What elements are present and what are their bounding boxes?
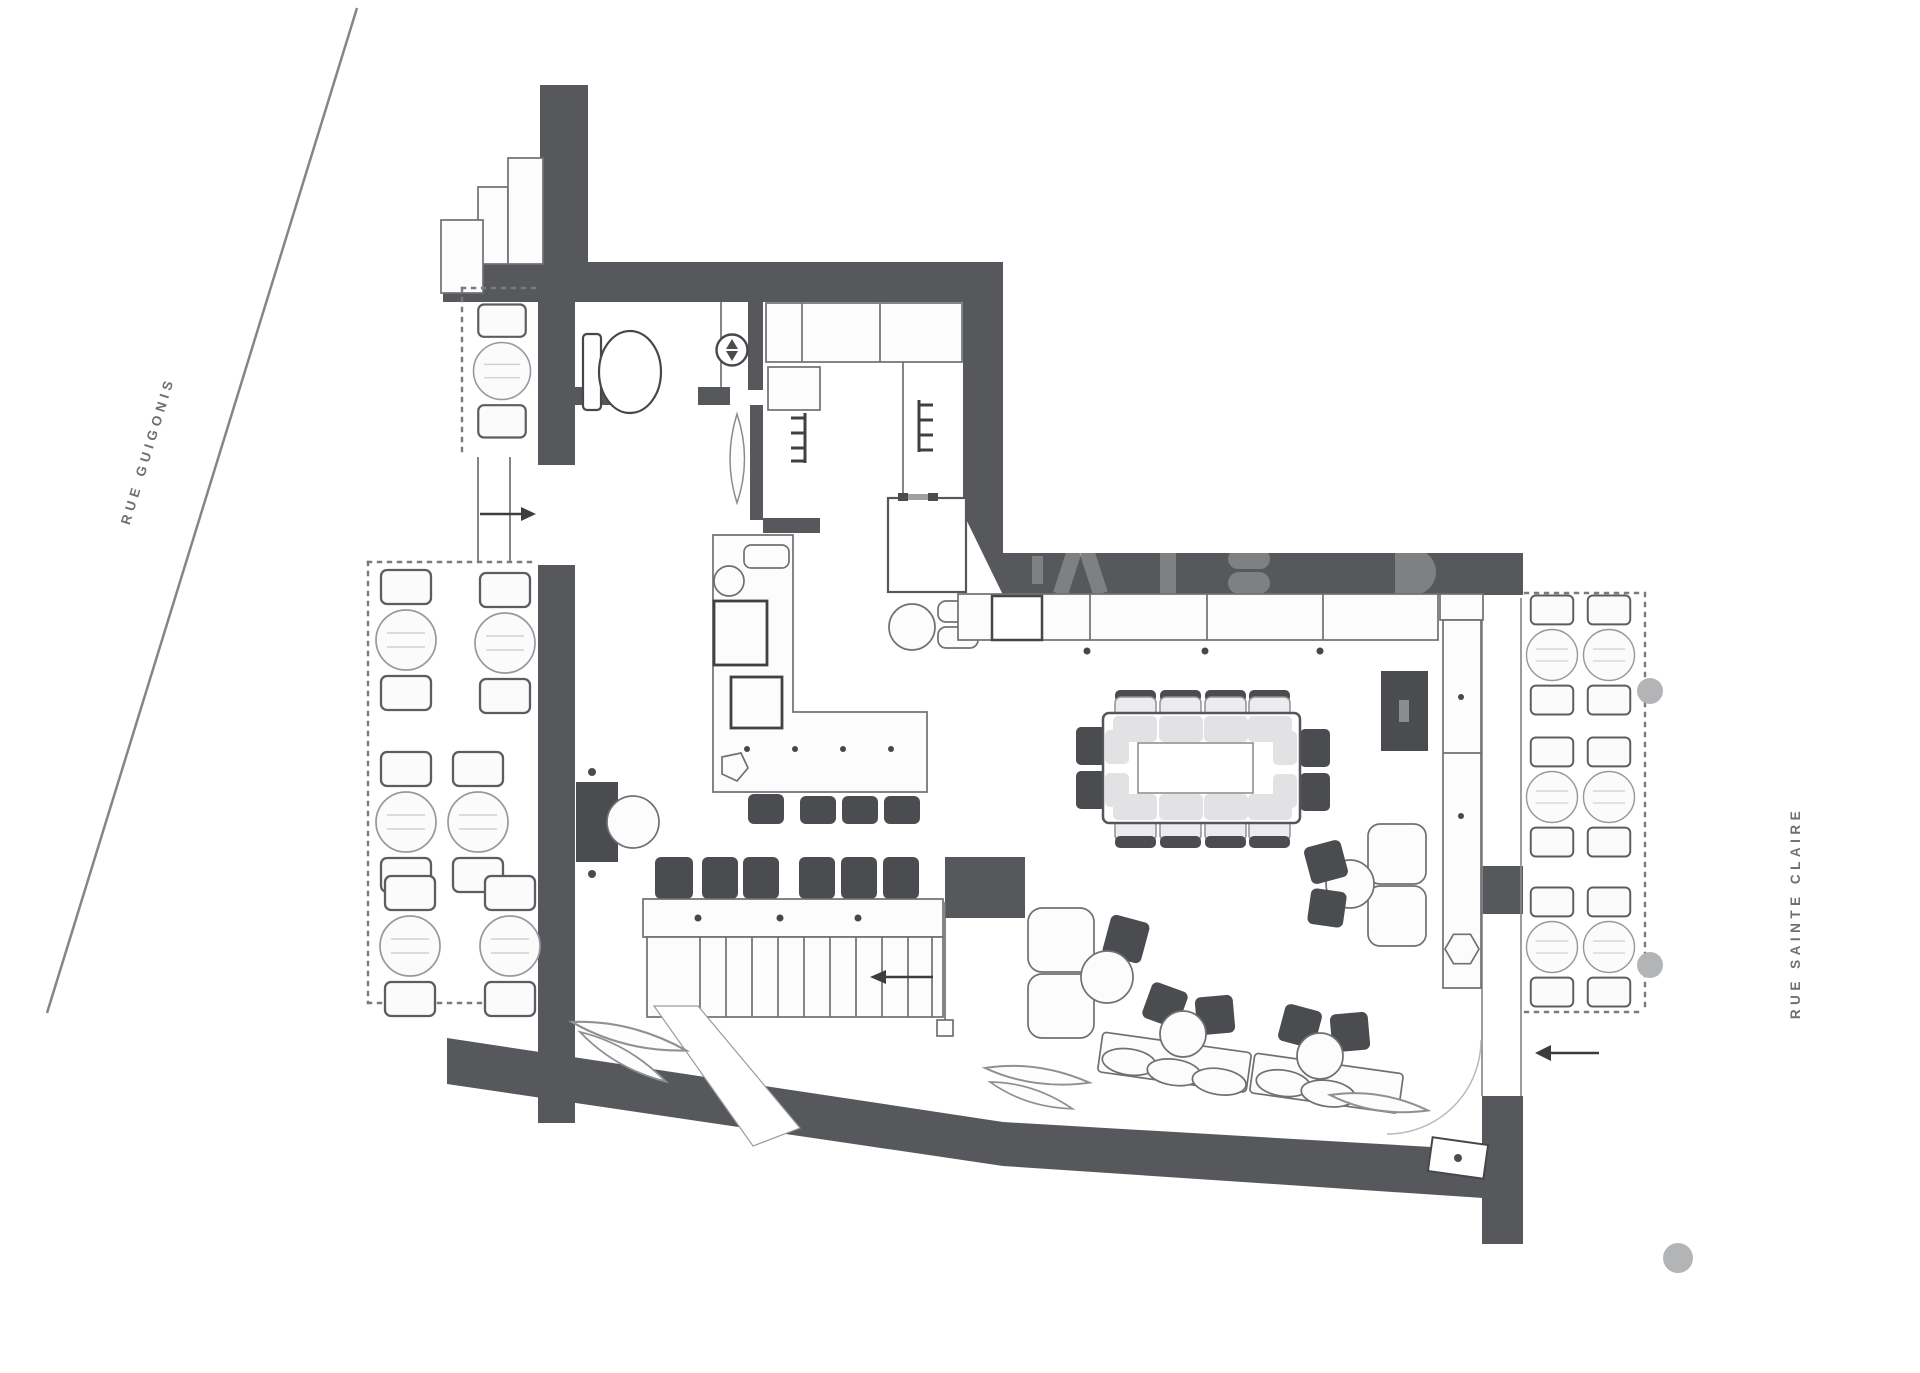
- terrace-table-set: [448, 752, 508, 892]
- bar-stool: [884, 796, 920, 824]
- bollard-dot: [1663, 1243, 1693, 1273]
- counter-end-pillar: [1440, 594, 1483, 620]
- bar-stool: [743, 857, 779, 899]
- round-table: [607, 796, 659, 848]
- facade-bottom-wall: [1482, 1096, 1523, 1244]
- entry-passage-left: [478, 457, 536, 563]
- entrance-doormat: [1428, 1137, 1488, 1178]
- right-entry-arrow-head-icon: [1535, 1045, 1551, 1061]
- upper-right-wall: [963, 302, 1003, 515]
- counter-appliance: [992, 596, 1042, 640]
- terrace-table-set: [474, 305, 531, 438]
- street-label-right: RUE SAINTE CLAIRE: [1788, 807, 1803, 1019]
- shelf-comb-icon: [919, 400, 933, 452]
- terrace-left: [368, 562, 540, 1016]
- terrace-table-set: [1527, 888, 1578, 1007]
- kitchen-cabinet-row: [766, 303, 962, 362]
- round-table: [889, 604, 935, 650]
- round-table: [1297, 1033, 1343, 1079]
- terrace-table-set: [376, 570, 436, 710]
- sofa-cushion: [1368, 824, 1426, 884]
- bar-stools: [748, 794, 920, 824]
- terrace-table-set: [1584, 888, 1635, 1007]
- bar-stool: [800, 796, 836, 824]
- lounge: [984, 824, 1479, 1118]
- sofa-cushion: [1028, 908, 1094, 972]
- floor-plan-drawing: RUE GUIGONIS RUE SAINTE CLAIRE: [0, 0, 1920, 1373]
- street-rue-guigonis: RUE GUIGONIS: [47, 8, 357, 1013]
- street-edge-line: [47, 8, 357, 1013]
- toilet-bowl: [599, 331, 661, 413]
- kitchen: [766, 303, 966, 592]
- left-wall-upper: [538, 300, 575, 465]
- terrace-table-set: [1584, 738, 1635, 857]
- bar-stool: [655, 857, 693, 899]
- kitchen-appliance-box: [768, 367, 820, 410]
- dining-table-group: [1076, 671, 1428, 848]
- console-detail: [1399, 700, 1409, 722]
- terrace-table-set: [376, 752, 436, 892]
- shelf-comb-icon: [791, 413, 805, 463]
- round-table: [1081, 951, 1133, 1003]
- terrace-table-set: [1584, 596, 1635, 715]
- facade-pier: [1482, 866, 1523, 914]
- kitchen-stub-wall: [750, 405, 763, 520]
- terrace-table-set: [1527, 738, 1578, 857]
- terrace-right: [1525, 593, 1645, 1012]
- fireplace-area: [576, 768, 659, 878]
- bar-stool: [841, 857, 877, 899]
- bar-stool: [883, 857, 919, 899]
- street-bollards: [1637, 678, 1693, 1273]
- door-column: [441, 220, 483, 293]
- counter-seat-dots: [1084, 648, 1324, 655]
- long-bar: [643, 857, 943, 937]
- top-wall: [443, 262, 1003, 302]
- terrace-table-set: [475, 573, 535, 713]
- bar-stools-row: [655, 857, 919, 899]
- floor-plan-page: RUE GUIGONIS RUE SAINTE CLAIRE: [0, 0, 1920, 1373]
- bar-stool: [748, 794, 784, 824]
- street-label-left: RUE GUIGONIS: [118, 375, 177, 526]
- bollard-dot: [1637, 678, 1663, 704]
- wc-south-wall-b: [698, 387, 730, 405]
- terrace-upper-left: [462, 288, 536, 455]
- terrace-table-set: [1527, 596, 1578, 715]
- bar-counter-long: [643, 899, 943, 937]
- step-outline-large: [508, 158, 543, 264]
- left-wall-lower: [538, 565, 575, 1123]
- hexagon-side-table: [1445, 934, 1479, 963]
- window-bench: [1443, 620, 1481, 988]
- wc-partition: [748, 302, 763, 390]
- kitchen-stub-foot: [763, 518, 820, 533]
- sofa-cushion: [1368, 886, 1426, 946]
- bench-outline: [1443, 620, 1481, 988]
- fridge: [888, 498, 966, 592]
- round-table: [1160, 1011, 1206, 1057]
- wall-chamfer: [963, 513, 1003, 595]
- terrace-table-set: [380, 876, 440, 1016]
- bollard-dot: [1637, 952, 1663, 978]
- bar-stool: [799, 857, 835, 899]
- stair-newel: [937, 1020, 953, 1036]
- terrace-table-set: [480, 876, 540, 1016]
- street-rue-sainte-claire: RUE SAINTE CLAIRE: [1788, 807, 1803, 1019]
- back-counter: [958, 594, 1483, 655]
- bar-stool: [842, 796, 878, 824]
- entry-right: [1535, 1045, 1599, 1061]
- stair-side-block: [945, 857, 1025, 918]
- bar-stool: [702, 857, 738, 899]
- left-entry-arrow-head-icon: [521, 507, 536, 521]
- door-leaf-swing: [730, 414, 745, 503]
- lounge-chair: [1307, 888, 1348, 929]
